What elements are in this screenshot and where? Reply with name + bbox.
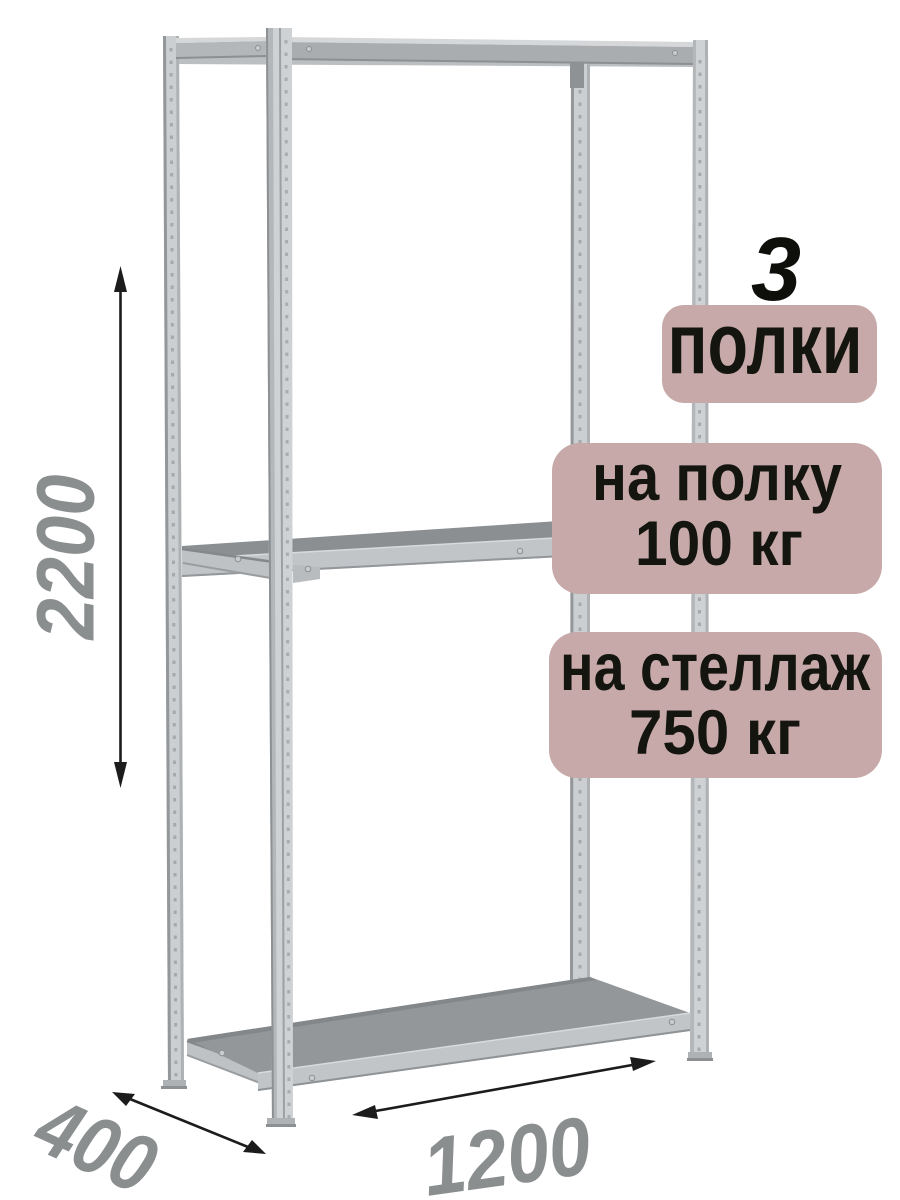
svg-text:2200: 2200 (21, 475, 112, 642)
svg-text:на стеллаж: на стеллаж (560, 630, 871, 705)
svg-text:полки: полки (668, 296, 863, 392)
svg-text:750 кг: 750 кг (629, 698, 801, 768)
svg-text:100 кг: 100 кг (635, 509, 803, 579)
svg-text:на полку: на полку (592, 440, 842, 514)
